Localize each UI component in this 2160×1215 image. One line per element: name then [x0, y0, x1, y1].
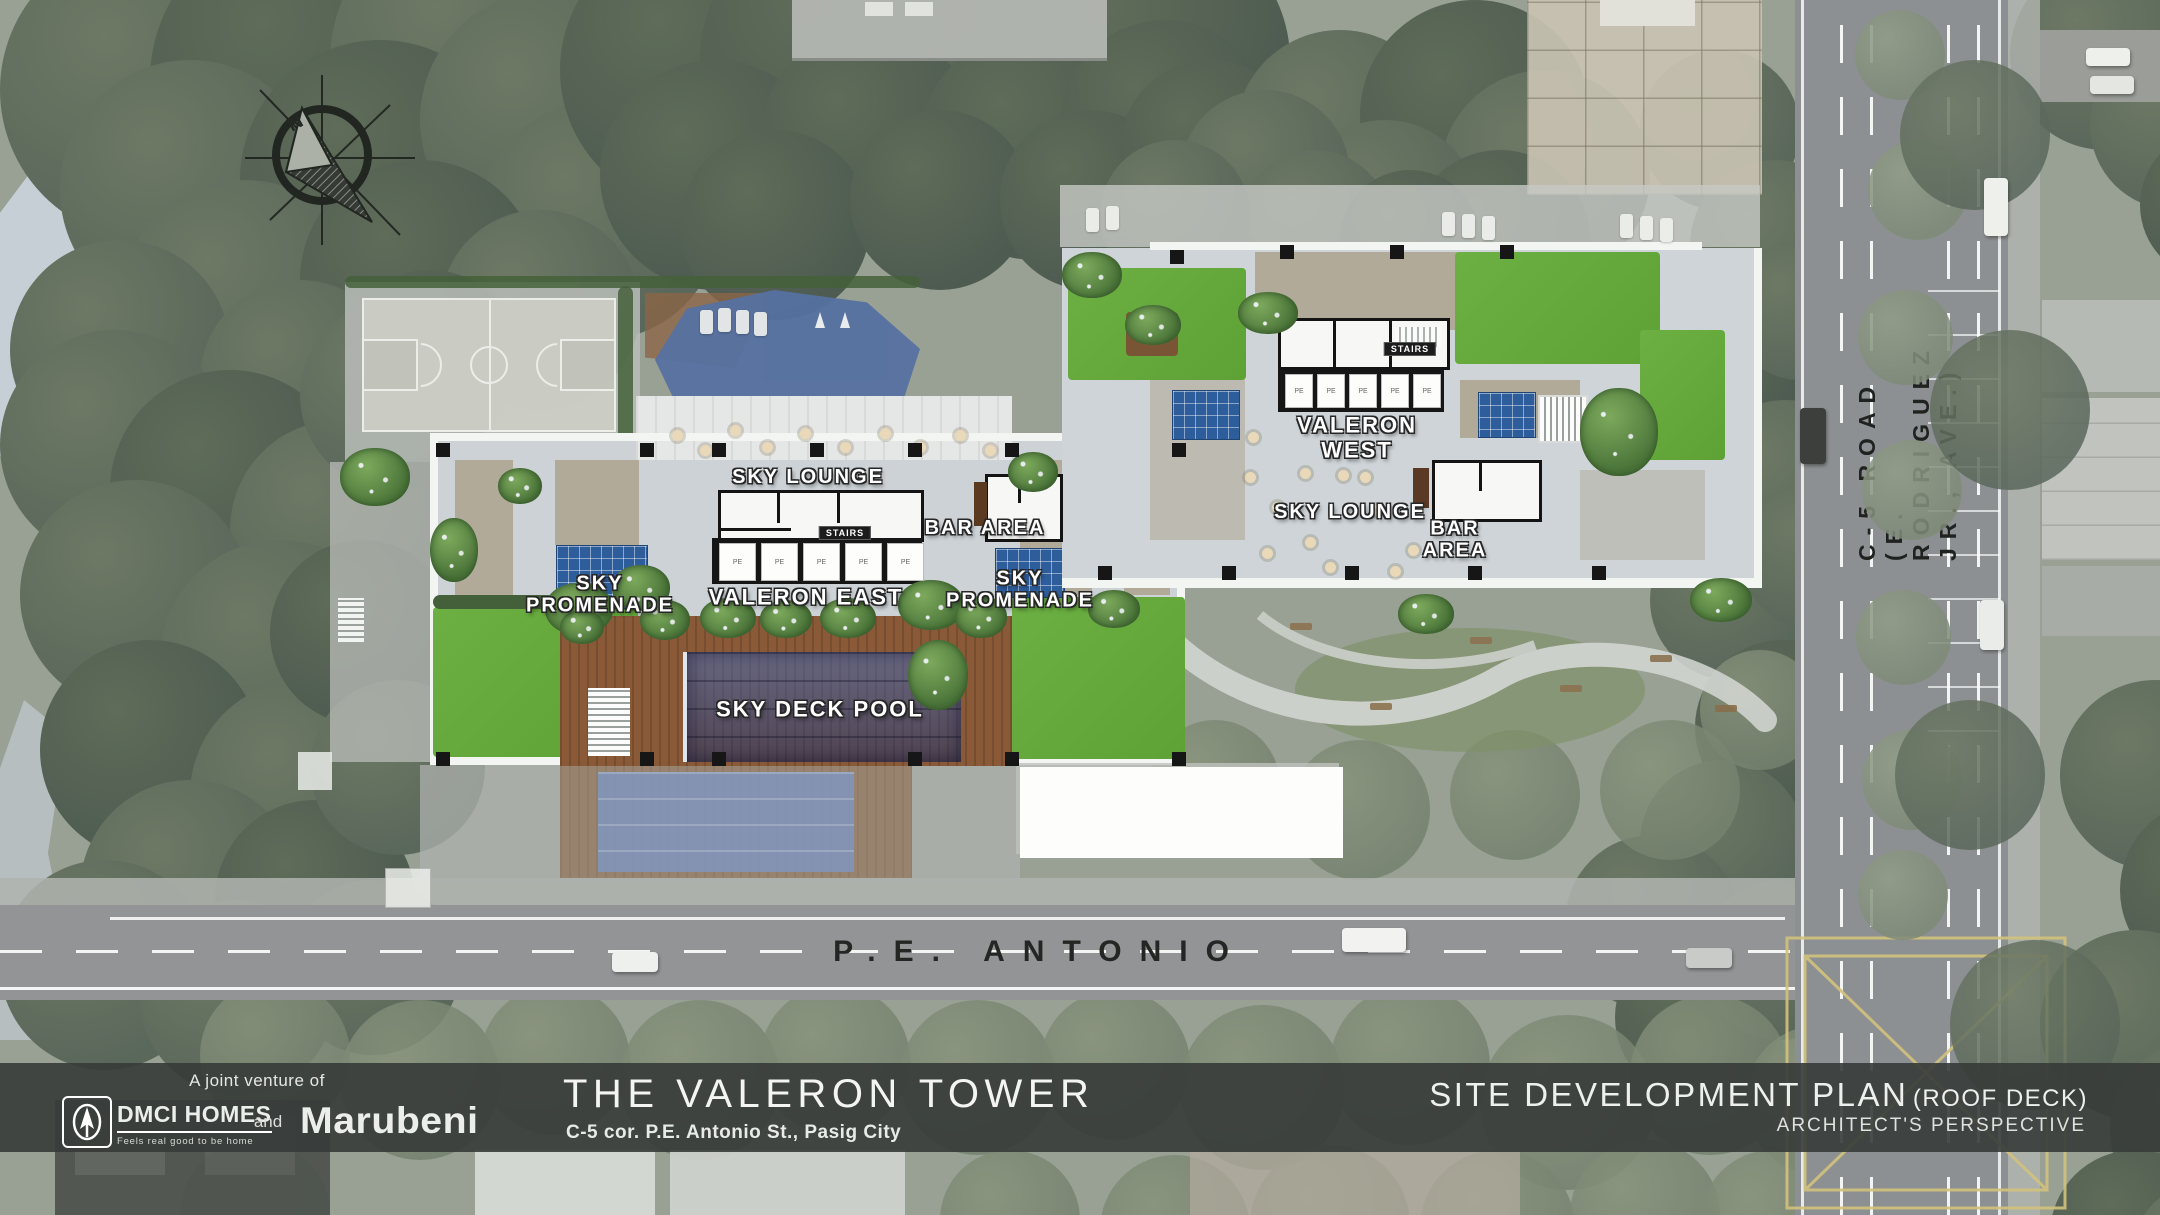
east-tan-2	[555, 460, 639, 545]
label-east-bar-area: BAR AREA	[925, 517, 1046, 539]
pool-lounger	[1086, 208, 1099, 232]
elevator-cell: PE	[1381, 374, 1409, 408]
column-marker	[640, 752, 654, 766]
column-marker	[908, 443, 922, 457]
plan-subtitle: ARCHITECT'S PERSPECTIVE	[1777, 1115, 2086, 1137]
column-marker	[1345, 566, 1359, 580]
tree-canopy	[1930, 330, 2090, 490]
lounge-table	[730, 425, 741, 436]
lounge-table	[1408, 545, 1419, 556]
car-parked-1	[2086, 48, 2130, 66]
tree-canopy	[1856, 590, 1951, 685]
label-west-bar-area: BAR AREA	[1423, 518, 1488, 563]
label-valeron-west: VALERON WEST	[1297, 413, 1417, 462]
pool-lounger	[1482, 216, 1495, 240]
west-wall-top	[1150, 242, 1702, 250]
lounge-table	[1248, 432, 1259, 443]
column-marker	[1222, 566, 1236, 580]
label-sky-promenade-left: SKY PROMENADE	[526, 573, 674, 618]
road-label-pe-antonio: P.E. ANTONIO	[833, 935, 1247, 969]
west-wall-right	[1754, 248, 1762, 588]
column-marker	[436, 752, 450, 766]
joint-venture-text: A joint venture of	[189, 1071, 325, 1091]
elevator-cell: PE	[1317, 374, 1345, 408]
project-title: THE VALERON TOWER	[563, 1072, 1094, 1117]
shrub-planter	[1125, 305, 1181, 345]
lounge-table	[840, 442, 851, 453]
car-gray-pe	[1686, 948, 1732, 968]
building-top-right	[1527, 0, 1762, 195]
column-marker	[1005, 752, 1019, 766]
lounge-table	[1360, 472, 1371, 483]
project-address: C-5 cor. P.E. Antonio St., Pasig City	[566, 1122, 901, 1144]
column-marker	[1098, 566, 1112, 580]
column-marker	[810, 443, 824, 457]
shrub-planter	[1398, 594, 1454, 634]
shrub-planter	[1580, 388, 1658, 476]
column-marker	[436, 443, 450, 457]
column-marker	[1005, 443, 1019, 457]
building-bottom-center-2	[670, 1150, 905, 1215]
lounge-table	[800, 428, 811, 439]
column-marker	[1468, 566, 1482, 580]
plan-title-suffix: (ROOF DECK)	[1913, 1085, 2088, 1112]
and-text: and	[254, 1112, 282, 1132]
shrub-planter	[430, 518, 478, 582]
shrub-planter	[1690, 578, 1752, 622]
lounge-table	[1305, 537, 1316, 548]
column-marker	[1592, 566, 1606, 580]
lounge-table	[1390, 566, 1401, 577]
solar-panels-west-right	[1478, 392, 1536, 438]
pavement-bottom-right	[1190, 1152, 1520, 1215]
shed-2	[385, 868, 431, 908]
column-marker	[1390, 245, 1404, 259]
tree-canopy	[940, 1150, 1080, 1215]
label-valeron-east: VALERON EAST	[709, 586, 904, 611]
pool-lounger	[1660, 218, 1673, 242]
column-marker	[1172, 752, 1186, 766]
basketball-court	[362, 298, 616, 432]
shrub-planter	[498, 468, 542, 504]
marubeni-wordmark: Marubeni	[300, 1100, 479, 1142]
label-east-sky-lounge: SKY LOUNGE	[732, 466, 884, 488]
shrub-planter	[1238, 292, 1298, 334]
plan-title: SITE DEVELOPMENT PLAN (ROOF DECK)	[1429, 1076, 2088, 1114]
pool-lounger	[1640, 216, 1653, 240]
elevator-cell: PE	[1349, 374, 1377, 408]
lounge-table	[1325, 562, 1336, 573]
tree-canopy	[1900, 60, 2050, 210]
label-west-stairs: STAIRS	[1384, 342, 1436, 356]
dmci-tagline: Feels real good to be home	[117, 1136, 272, 1147]
pool-lounger	[1462, 214, 1475, 238]
north-arrow-icon: N	[240, 70, 420, 250]
west-bar-structure	[1432, 460, 1542, 522]
pool-lounger	[1620, 214, 1633, 238]
pool-lounger	[736, 310, 749, 334]
tree-canopy	[1895, 700, 2045, 850]
dmci-logo-mark	[64, 1098, 110, 1146]
column-marker	[1170, 250, 1184, 264]
building-right-3	[2042, 566, 2160, 636]
car-parked-2	[2090, 76, 2134, 94]
elevator-cell: PE	[803, 543, 840, 581]
pool-lounger	[718, 308, 731, 332]
hedge-court-top	[345, 276, 920, 288]
west-tan-4	[1580, 470, 1705, 560]
car-white-pe	[612, 952, 658, 972]
west-upper-terrace	[1060, 185, 1760, 247]
tree-canopy	[1858, 850, 1948, 940]
solar-panels-west-left	[1172, 390, 1240, 440]
west-wall-bottom	[1062, 578, 1762, 588]
lounge-table	[1262, 548, 1273, 559]
east-skylounge-terrace	[636, 396, 1012, 460]
column-marker	[712, 752, 726, 766]
stair-west-apron	[338, 598, 364, 642]
pickup-white-c5	[1984, 178, 2008, 236]
ground-pool-faded	[598, 772, 854, 872]
pool-lounger	[1106, 206, 1119, 230]
label-sky-deck-pool: SKY DECK POOL	[716, 698, 924, 723]
shrub-planter	[1088, 590, 1140, 628]
label-west-sky-lounge: SKY LOUNGE	[1274, 501, 1426, 523]
lounge-table	[1300, 468, 1311, 479]
dmci-logo	[62, 1096, 112, 1148]
west-lawn-topright	[1455, 252, 1660, 364]
suv-dark-c5	[1800, 408, 1826, 464]
lounge-table	[985, 445, 996, 456]
car-white-c5	[1980, 600, 2004, 650]
elevator-cell: PE	[719, 543, 756, 581]
van-white-pe	[1342, 928, 1406, 952]
column-marker	[712, 443, 726, 457]
lounge-table	[672, 430, 683, 441]
elevator-cell: PE	[887, 543, 924, 581]
site-development-plan: P.E. ANTONIO C-5 ROAD (E. RODRIGUEZ JR.,…	[0, 0, 2160, 1215]
column-marker	[1280, 245, 1294, 259]
lounge-table	[955, 430, 966, 441]
lounge-table	[762, 442, 773, 453]
shrub-planter	[340, 448, 410, 506]
lounge-table	[700, 445, 711, 456]
elevator-cell: PE	[1413, 374, 1441, 408]
column-marker	[640, 443, 654, 457]
elevator-cell: PE	[845, 543, 882, 581]
pool-lounger	[700, 310, 713, 334]
dmci-wordmark: DMCI HOMES Feels real good to be home	[117, 1101, 272, 1147]
column-marker	[1500, 245, 1514, 259]
shrub-planter	[1008, 452, 1058, 492]
stair-to-ground	[588, 688, 630, 756]
shrub-planter	[1062, 252, 1122, 298]
lounge-table	[880, 428, 891, 439]
shed-1	[298, 752, 332, 790]
column-marker	[908, 752, 922, 766]
pool-lounger	[1442, 212, 1455, 236]
label-east-stairs: STAIRS	[819, 526, 871, 540]
building-bottom-center-1	[475, 1150, 655, 1215]
lounge-table	[1245, 472, 1256, 483]
elevator-cell: PE	[1285, 374, 1313, 408]
label-sky-promenade-right: SKY PROMENADE	[946, 568, 1094, 613]
lounge-table	[1338, 470, 1349, 481]
building-top-center	[792, 0, 1107, 61]
column-marker	[1172, 443, 1186, 457]
canopy-white	[1020, 767, 1343, 858]
pool-lounger	[754, 312, 767, 336]
elevator-cell: PE	[761, 543, 798, 581]
